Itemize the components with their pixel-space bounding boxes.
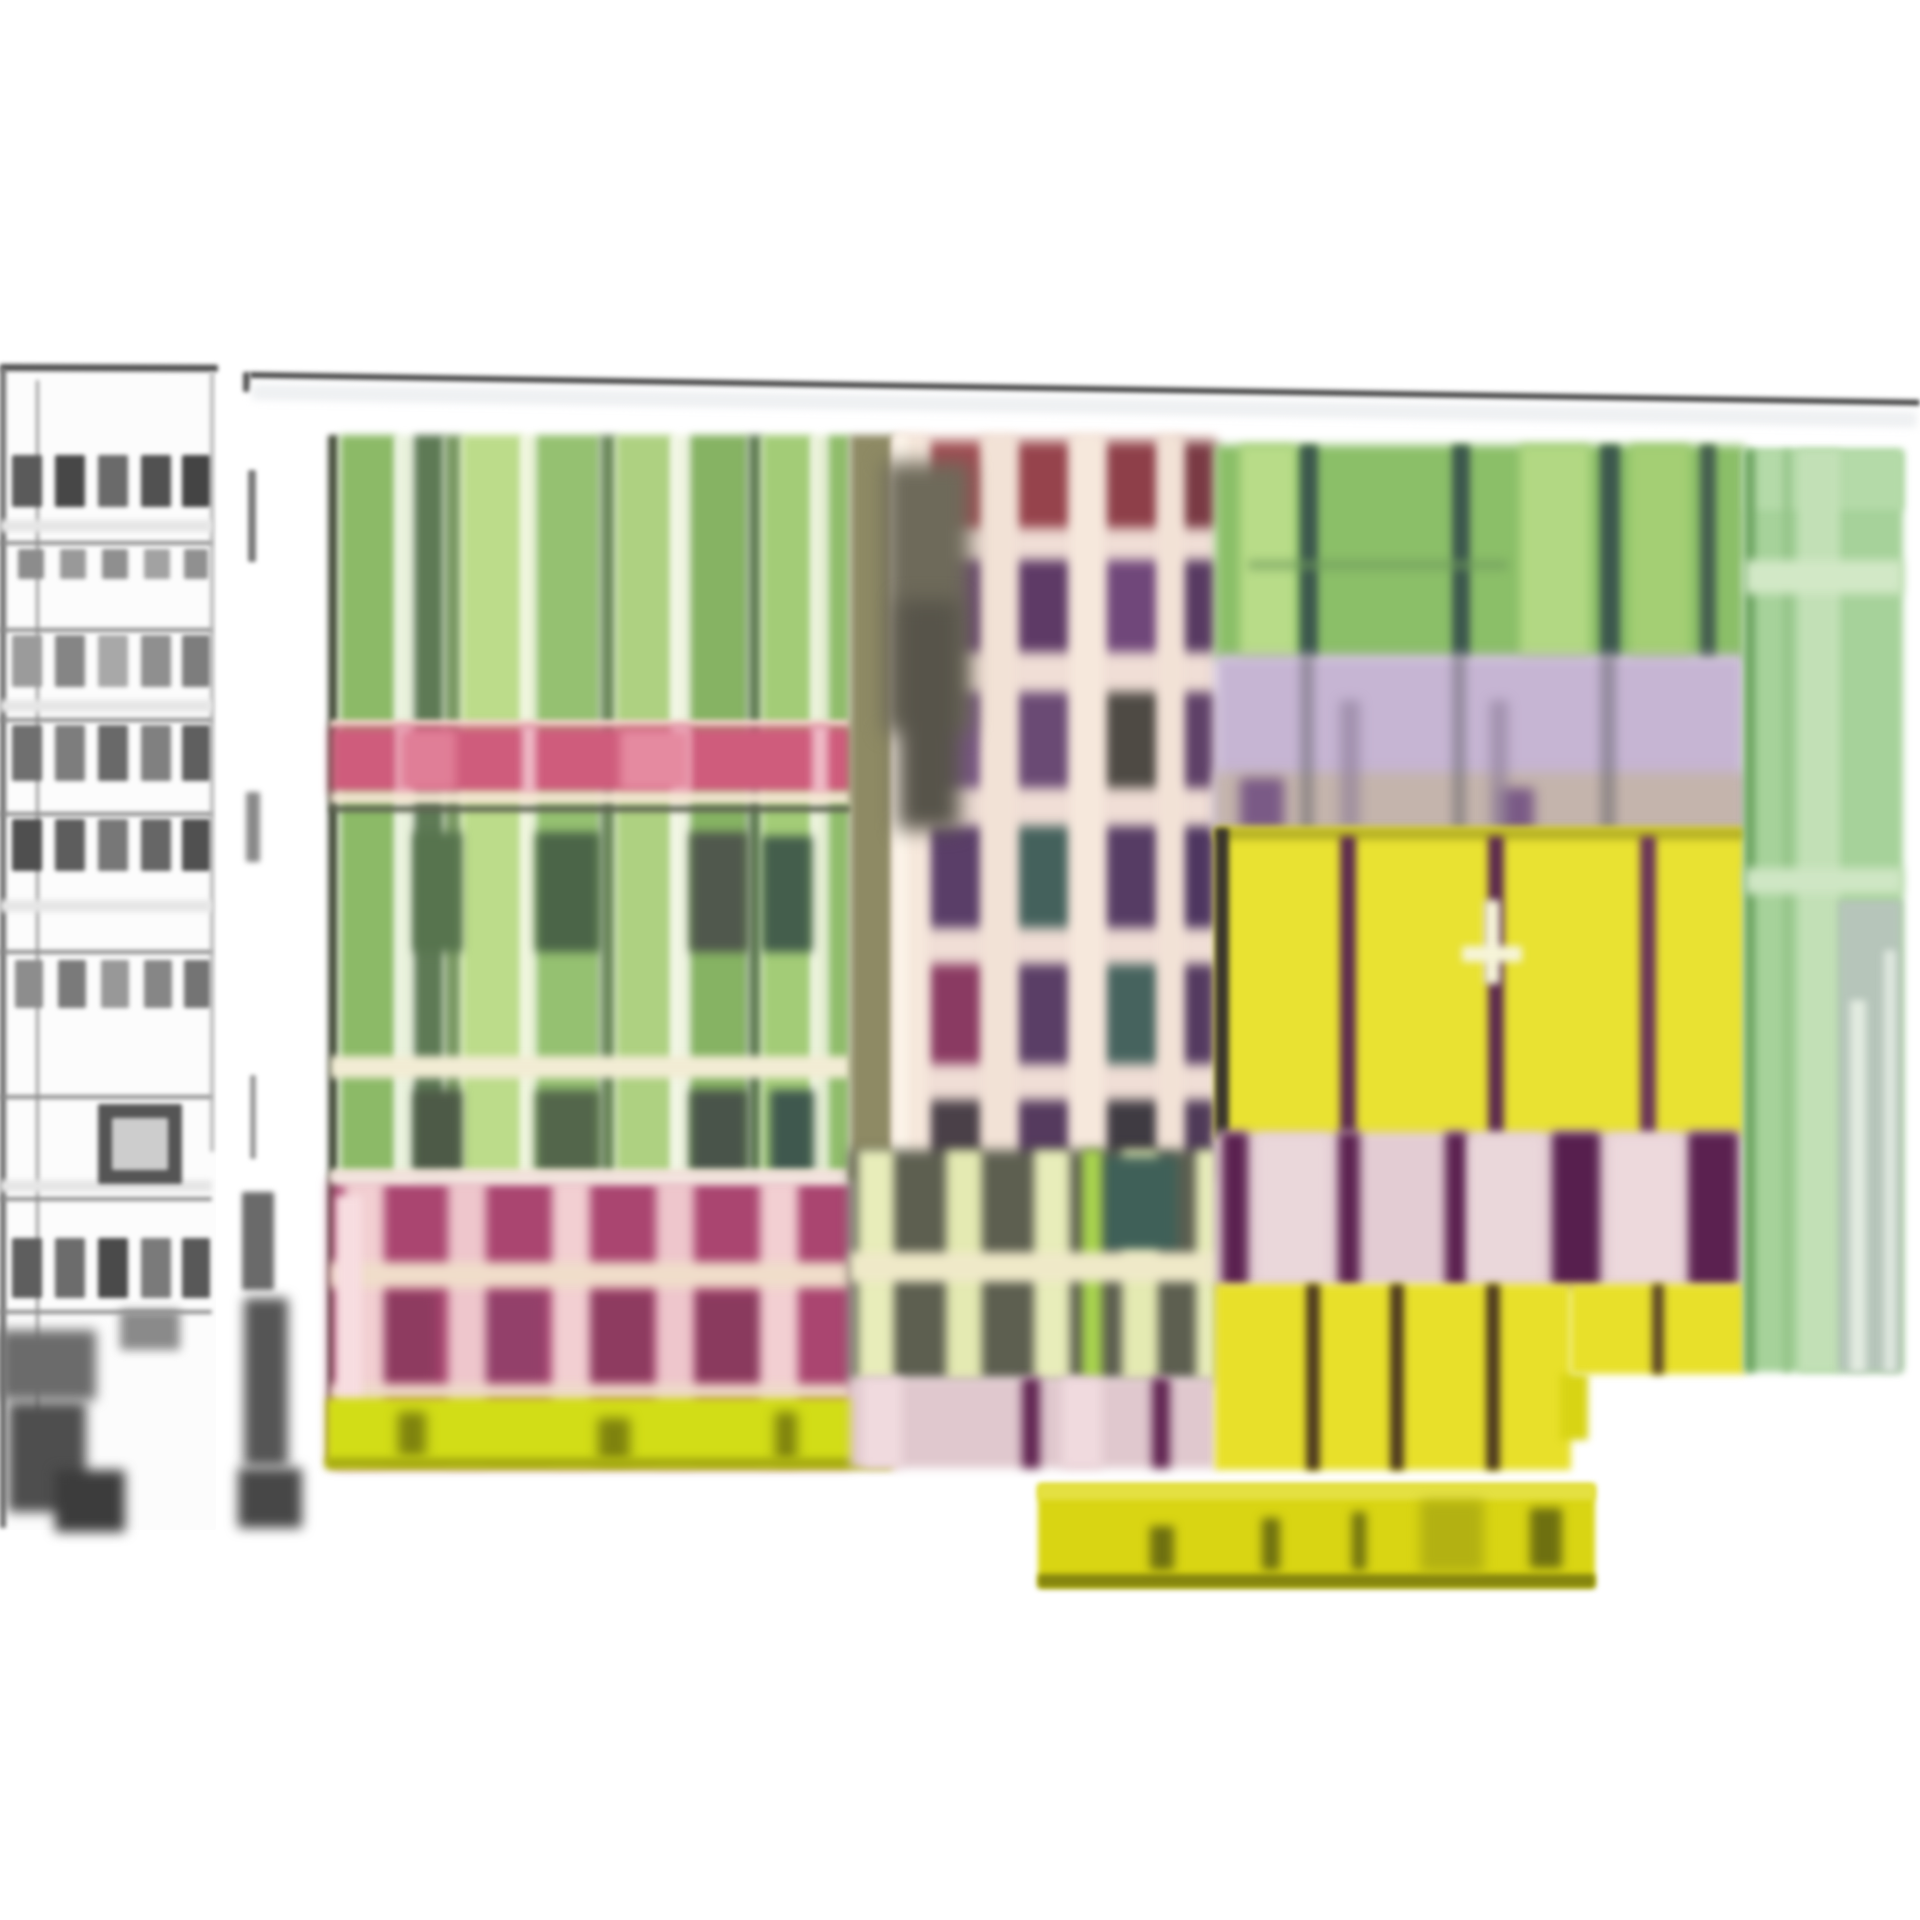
photo-shape <box>1745 560 1903 594</box>
photo-shape <box>1520 445 1590 660</box>
photo-shape <box>184 549 208 579</box>
photo-shape <box>55 1470 125 1532</box>
photo-shape <box>414 1090 462 1175</box>
photo-shape <box>690 832 748 952</box>
photo-shape <box>98 725 128 781</box>
photo-shape <box>1070 435 1104 1180</box>
photo-shape <box>12 819 42 871</box>
photo-shape <box>101 960 129 1008</box>
photo-shape <box>182 725 210 781</box>
photo-shape <box>18 549 44 579</box>
photo-shape <box>928 826 984 928</box>
photo-shape <box>0 1310 212 1314</box>
photo-shape <box>55 725 85 781</box>
photo-shape <box>1352 1512 1366 1570</box>
photo-shape <box>102 549 128 579</box>
photo-shape <box>536 1090 600 1175</box>
photo-shape <box>0 628 212 632</box>
street-bin <box>242 1192 274 1290</box>
photo-shape <box>850 1252 1216 1282</box>
photo-shape <box>1688 1132 1738 1286</box>
grayscale-window <box>12 455 42 507</box>
photo-shape <box>1600 445 1620 660</box>
photo-shape <box>1560 1374 1588 1440</box>
photo-shape <box>330 1262 852 1288</box>
photo-shape <box>1452 655 1466 833</box>
street-pole <box>248 470 256 562</box>
photo-shape <box>1062 1378 1102 1468</box>
photo-shape <box>182 819 210 871</box>
photo-shape <box>1300 655 1314 833</box>
photo-shape <box>0 950 212 954</box>
photo-shape <box>0 1197 212 1201</box>
photo-shape <box>0 718 212 722</box>
photo-shape <box>141 725 171 781</box>
photo-shape <box>98 455 128 507</box>
photo-shape <box>330 1172 852 1184</box>
photo-shape <box>690 1292 766 1384</box>
photo-shape <box>1300 445 1318 660</box>
photo-shape <box>1488 836 1504 1140</box>
photo-shape <box>12 1238 42 1298</box>
grayscale-bottom-smudge <box>0 1330 96 1400</box>
photo-shape <box>330 806 852 812</box>
photo-shape <box>12 725 42 781</box>
photo-shape <box>522 726 536 794</box>
photo-shape <box>330 792 852 804</box>
photo-shape <box>1340 700 1360 830</box>
photo-shape <box>0 1095 212 1099</box>
photo-shape <box>982 435 1016 1180</box>
photo-shape <box>182 635 210 687</box>
photo-shape <box>98 819 128 871</box>
photo-shape <box>182 455 210 507</box>
photo-shape <box>1104 560 1160 652</box>
photo-shape <box>1016 964 1072 1064</box>
photo-shape <box>1016 826 1072 928</box>
photo-shape <box>141 819 171 871</box>
photo-shape <box>15 960 43 1008</box>
photo-shape <box>775 1412 797 1460</box>
photo-shape <box>1390 1284 1404 1470</box>
photo-shape <box>620 730 690 790</box>
photo-shape <box>184 960 210 1008</box>
photo-shape <box>55 635 85 687</box>
photo-shape <box>1452 445 1470 660</box>
photo-shape <box>1700 445 1716 660</box>
photo-shape <box>1215 828 1229 1140</box>
photo-shape <box>238 1468 302 1528</box>
grayscale-building-roofline <box>0 364 218 372</box>
photo-shape <box>690 1090 748 1175</box>
photo-shape <box>598 1418 630 1460</box>
photo-shape <box>326 1458 892 1468</box>
photo-shape <box>398 1412 426 1456</box>
photo-shape <box>1484 900 1500 984</box>
photo-shape <box>98 635 128 687</box>
photo-shape <box>1222 1132 1248 1286</box>
photo-shape <box>60 549 86 579</box>
photo-shape <box>1552 1132 1600 1286</box>
photo-shape <box>812 726 828 794</box>
photo-shape <box>1745 868 1903 894</box>
photo-shape <box>1420 1500 1484 1572</box>
photo-shape <box>862 1378 902 1468</box>
photo-shape <box>246 792 260 862</box>
photo-shape <box>1640 836 1656 1140</box>
photo-shape <box>580 1290 656 1384</box>
photo-shape <box>0 520 212 532</box>
photo-shape <box>1470 1136 1542 1282</box>
photo-shape <box>0 812 212 816</box>
photo-shape <box>770 1090 814 1175</box>
photo-canvas <box>0 0 1920 1920</box>
big-yellow-panels <box>1215 828 1745 1140</box>
photo-shape <box>1530 1508 1562 1568</box>
photo-shape <box>182 1238 210 1298</box>
photo-shape <box>55 1238 85 1298</box>
photo-shape <box>400 730 456 790</box>
photo-shape <box>1104 692 1160 788</box>
photo-shape <box>1104 964 1160 1064</box>
photo-shape <box>0 900 212 912</box>
photo-shape <box>1016 692 1072 788</box>
photo-shape <box>1016 560 1072 652</box>
photo-shape <box>330 1056 852 1078</box>
photo-shape <box>1258 1136 1328 1282</box>
photo-shape <box>1038 1574 1595 1588</box>
photo-shape <box>210 372 214 1152</box>
photo-shape <box>58 960 86 1008</box>
photo-shape <box>1338 1132 1360 1286</box>
photo-shape <box>1340 836 1356 1140</box>
photo-shape <box>1152 1378 1170 1468</box>
photo-shape <box>762 836 812 952</box>
photo-shape <box>1022 1378 1040 1468</box>
photo-shape <box>120 1310 180 1350</box>
photo-shape <box>1240 778 1284 830</box>
photo-shape <box>1306 1284 1320 1470</box>
photo-shape <box>1486 1284 1500 1470</box>
photo-shape <box>1104 442 1160 528</box>
photo-shape <box>141 635 171 687</box>
photo-shape <box>1490 700 1508 830</box>
photo-shape <box>1850 1000 1866 1372</box>
photo-shape <box>1215 828 1745 840</box>
photo-shape <box>1038 1484 1595 1500</box>
photo-shape <box>536 832 600 952</box>
photo-shape <box>12 635 42 687</box>
photo-shape <box>1884 950 1896 1372</box>
photo-shape <box>55 455 85 507</box>
photo-shape <box>1150 1526 1174 1570</box>
photo-shape <box>98 1238 128 1298</box>
photo-shape <box>0 541 212 545</box>
photo-shape <box>898 600 960 830</box>
photo-shape <box>1600 655 1616 833</box>
photo-shape <box>0 700 212 712</box>
photo-shape <box>1215 772 1745 832</box>
photo-shape <box>1462 946 1522 962</box>
photo-shape <box>1262 1518 1280 1570</box>
photo-shape <box>1100 1156 1178 1252</box>
photo-shape <box>112 1118 168 1170</box>
photo-shape <box>928 964 984 1064</box>
photo-shape <box>1016 442 1072 528</box>
photo-shape <box>243 372 250 392</box>
green-section-window <box>414 832 462 952</box>
photo-shape <box>1610 1136 1680 1282</box>
photo-shape <box>1248 560 1508 570</box>
photo-shape <box>1630 445 1690 660</box>
photo-shape <box>1158 435 1184 1180</box>
photo-shape <box>1240 445 1296 660</box>
photo-shape <box>1445 1132 1467 1286</box>
photo-shape <box>250 1075 256 1159</box>
photo-shape <box>141 1238 171 1298</box>
photo-shape <box>144 549 170 579</box>
photo-shape <box>141 455 171 507</box>
photo-shape <box>1104 826 1160 928</box>
photo-shape <box>55 819 85 871</box>
photo-shape <box>144 960 172 1008</box>
street-figure <box>244 1298 288 1466</box>
photo-shape <box>1652 1284 1664 1374</box>
